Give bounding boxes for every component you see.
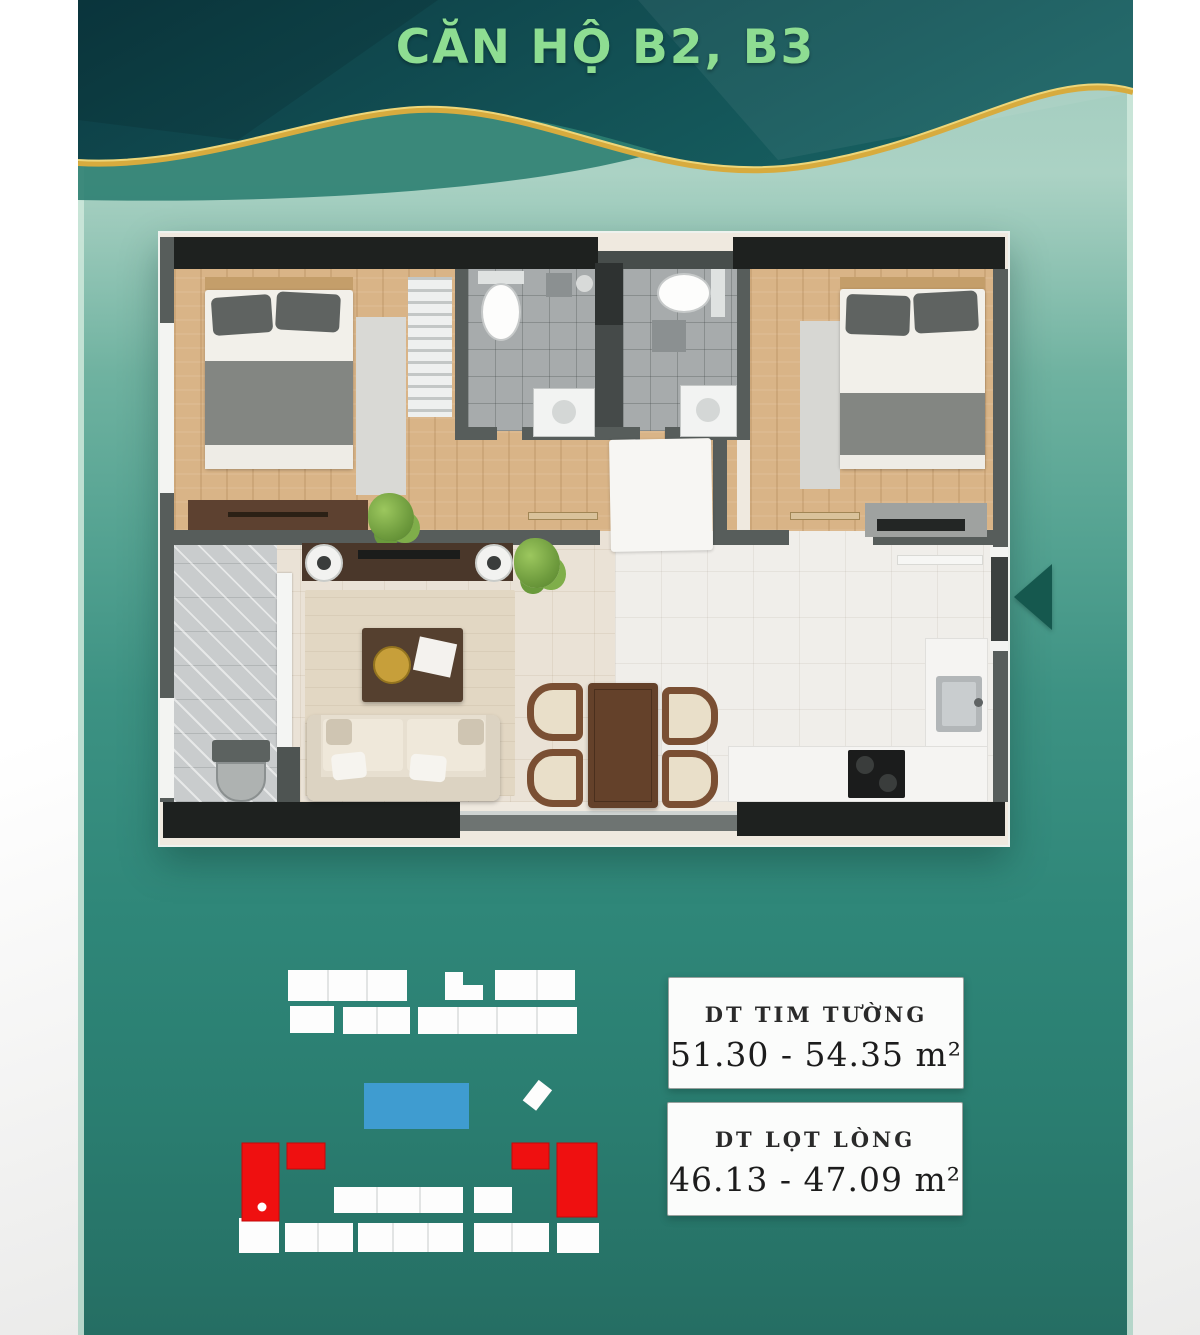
shower2-drain — [652, 320, 686, 352]
page-title: CĂN HỘ B2, B3 — [78, 20, 1133, 75]
bed1-sheet-fold — [205, 445, 353, 469]
cooktop — [848, 750, 905, 798]
sink2-basin — [696, 398, 720, 422]
wall-bathroom2-bedroom2 — [737, 269, 750, 437]
toilet2-bowl — [657, 273, 711, 313]
gold-tray — [373, 646, 411, 684]
area-box-lot-long: DT LỌT LÒNG 46.13 - 47.09 m² — [667, 1102, 963, 1216]
dining-chair-1 — [527, 683, 583, 741]
bed2-blanket — [840, 393, 985, 455]
sofa-pillow-white-2 — [409, 753, 447, 782]
sofa-arm-left — [307, 715, 321, 801]
bed2-headboard — [840, 277, 985, 289]
dining-chair-2 — [527, 749, 583, 807]
tv-screen — [358, 550, 460, 559]
plant-bedroom1-icon — [368, 493, 414, 541]
bedroom1-door-leaf — [528, 512, 598, 520]
bed1-pillow-right — [275, 291, 341, 332]
area-box-label: DT TIM TƯỜNG — [669, 1002, 963, 1027]
top-wall-left — [165, 237, 598, 269]
area-box-value: 46.13 - 47.09 m² — [668, 1160, 962, 1199]
entrance-arrow-icon — [1014, 564, 1052, 630]
entry-door-jamb-top — [990, 547, 1008, 557]
keyplan-diagonal-building — [523, 1080, 552, 1111]
poster-page: CĂN HỘ B2, B3 — [0, 0, 1200, 1335]
floor-plan-image — [160, 233, 1008, 845]
divider-cabinet — [277, 573, 292, 747]
dining-chair-3 — [662, 687, 718, 745]
cooktop-burner-2 — [879, 774, 897, 792]
bed2-pillow-right — [913, 290, 979, 333]
bed1-headboard — [205, 277, 353, 290]
bottom-wall-right — [737, 802, 1005, 836]
bottom-window-wall — [460, 811, 737, 831]
toilet2-tank — [711, 269, 725, 317]
sofa-pillow-white-1 — [331, 751, 368, 780]
bedroom2-rug — [800, 321, 840, 489]
bedroom1-rug — [356, 317, 406, 495]
area-box-label: DT LỌT LÒNG — [668, 1127, 962, 1152]
bedroom2-door-leaf — [790, 512, 860, 520]
entry-door — [991, 557, 1008, 641]
speaker-right-icon — [475, 544, 513, 582]
bedroom2-tv — [877, 519, 965, 531]
balcony-window — [160, 698, 174, 798]
shower1-head — [576, 275, 593, 292]
site-key-plan — [230, 965, 610, 1260]
bedroom1-window — [160, 323, 174, 493]
bottom-wall-left — [163, 802, 460, 838]
kitchen-faucet — [974, 698, 983, 707]
wardrobe-handle — [228, 512, 328, 517]
hallway-mat — [609, 438, 713, 552]
hall-wall-stub — [713, 437, 727, 545]
bed2-sheet-fold — [840, 455, 985, 469]
plant-living-icon — [514, 538, 560, 588]
washer-top — [212, 740, 270, 762]
bedroom1-closet — [408, 277, 452, 417]
entry-door-jamb-bottom — [990, 641, 1008, 651]
shower1-drain — [546, 273, 572, 297]
cooktop-burner-1 — [856, 756, 874, 774]
sofa-arm-right — [486, 715, 500, 801]
sofa-backrest — [307, 777, 500, 801]
right-margin — [1133, 0, 1200, 1335]
bathroom-south-wall-1 — [455, 427, 497, 440]
keyplan-pool — [364, 1083, 469, 1129]
mid-wall-center — [727, 530, 789, 545]
left-margin — [0, 0, 78, 1335]
sink1-basin — [552, 400, 576, 424]
top-wall-right — [733, 237, 1005, 269]
speaker-left-icon — [305, 544, 343, 582]
sofa-cushion-left — [326, 719, 352, 745]
dining-table-inner — [594, 689, 652, 802]
dining-chair-4 — [662, 750, 718, 808]
toilet1-bowl — [481, 283, 521, 341]
service-shaft — [595, 263, 623, 325]
sofa-cushion-right — [458, 719, 484, 745]
bed2-pillow-left — [845, 294, 910, 336]
balcony-wall-stub — [277, 747, 300, 802]
area-box-tim-tuong: DT TIM TƯỜNG 51.30 - 54.35 m² — [668, 977, 964, 1089]
bed1-pillow-left — [211, 294, 274, 336]
wall-bedroom1-bathroom1 — [455, 269, 468, 437]
kitchen-shelf — [897, 555, 983, 565]
bed1-blanket — [205, 361, 353, 445]
area-box-value: 51.30 - 54.35 m² — [669, 1035, 963, 1074]
kitchen-sink-basin — [942, 682, 976, 726]
